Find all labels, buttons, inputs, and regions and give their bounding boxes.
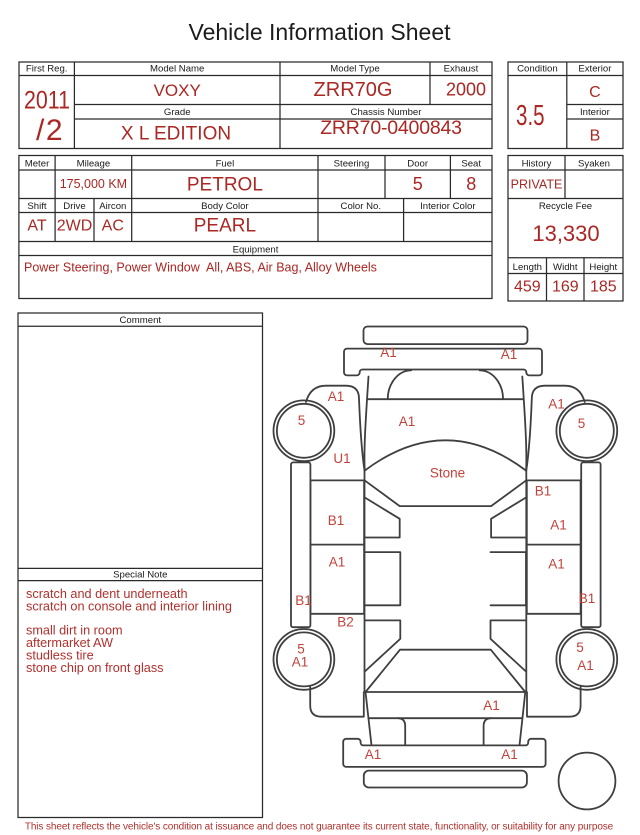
svg-text:B1: B1 (535, 484, 552, 499)
svg-text:A1: A1 (365, 747, 382, 762)
svg-text:B: B (590, 128, 601, 145)
svg-text:stone chip on front glass: stone chip on front glass (26, 661, 164, 675)
svg-text:A1: A1 (380, 345, 397, 360)
svg-text:Mileage: Mileage (77, 159, 111, 170)
svg-text:Vehicle Information Sheet: Vehicle Information Sheet (189, 19, 452, 45)
svg-text:A1: A1 (292, 655, 309, 670)
svg-text:AC: AC (102, 218, 124, 235)
svg-text:Seat: Seat (461, 159, 481, 170)
svg-text:PETROL: PETROL (187, 175, 263, 196)
svg-text:PEARL: PEARL (194, 216, 256, 237)
svg-text:2011: 2011 (24, 87, 70, 115)
svg-text:Fuel: Fuel (216, 159, 235, 170)
svg-text:History: History (522, 159, 552, 170)
svg-text:Shift: Shift (27, 201, 47, 212)
svg-text:Height: Height (589, 262, 617, 273)
svg-text:A1: A1 (483, 698, 500, 713)
svg-text:A1: A1 (399, 414, 416, 429)
svg-text:A1: A1 (577, 658, 594, 673)
svg-text:Comment: Comment (120, 315, 162, 326)
svg-text:Color No.: Color No. (341, 201, 382, 212)
svg-text:Stone: Stone (430, 466, 465, 481)
svg-text:Meter: Meter (25, 159, 50, 170)
svg-text:B2: B2 (337, 615, 354, 630)
svg-text:Grade: Grade (164, 107, 191, 118)
svg-text:This sheet reflects the vehicl: This sheet reflects the vehicle's condit… (25, 822, 614, 833)
svg-text:A1: A1 (548, 557, 565, 572)
svg-text:Syaken: Syaken (578, 159, 610, 170)
svg-text:AT: AT (27, 218, 46, 235)
svg-text:5: 5 (576, 640, 584, 655)
svg-text:PRIVATE: PRIVATE (511, 178, 563, 192)
svg-text:C: C (589, 84, 601, 101)
svg-text:A1: A1 (550, 518, 567, 533)
svg-text:5: 5 (298, 413, 306, 428)
svg-text:13,330: 13,330 (532, 221, 599, 246)
svg-text:ZRR70-0400843: ZRR70-0400843 (320, 117, 462, 139)
svg-text:2WD: 2WD (57, 218, 93, 235)
svg-text:5: 5 (578, 416, 586, 431)
svg-text:Exterior: Exterior (578, 64, 612, 75)
svg-text:Interior: Interior (580, 107, 611, 118)
svg-text:Power Steering, Power Window: Power Steering, Power Window All, ABS, A… (24, 261, 377, 275)
svg-text:scratch on console and interio: scratch on console and interior lining (26, 599, 232, 613)
svg-text:Condition: Condition (517, 64, 558, 75)
svg-text:175,000 KM: 175,000 KM (60, 177, 127, 191)
svg-text:Equipment: Equipment (233, 245, 279, 256)
svg-text:VOXY: VOXY (154, 81, 201, 100)
svg-text:Model Type: Model Type (330, 64, 379, 75)
svg-text:First Reg.: First Reg. (26, 64, 68, 75)
svg-text:Special Note: Special Note (113, 570, 167, 581)
svg-text:459: 459 (514, 279, 541, 296)
svg-text:8: 8 (466, 174, 476, 194)
svg-text:185: 185 (590, 279, 617, 296)
svg-text:A1: A1 (328, 389, 345, 404)
svg-text:3.5: 3.5 (516, 100, 545, 132)
svg-text:Widht: Widht (553, 262, 578, 273)
svg-text:B1: B1 (328, 513, 345, 528)
svg-text:A1: A1 (501, 747, 518, 762)
svg-text:Recycle Fee: Recycle Fee (539, 201, 592, 212)
svg-text:B1: B1 (295, 593, 312, 608)
svg-text:Exhaust: Exhaust (444, 64, 479, 75)
svg-text:X L EDITION: X L EDITION (121, 124, 231, 145)
svg-text:169: 169 (552, 279, 579, 296)
svg-text:Drive: Drive (63, 201, 85, 212)
svg-text:A1: A1 (548, 397, 565, 412)
svg-text:Body Color: Body Color (201, 201, 249, 212)
svg-text:A1: A1 (329, 555, 346, 570)
svg-text:A1: A1 (501, 347, 518, 362)
svg-text:Model Name: Model Name (150, 64, 204, 75)
svg-text:U1: U1 (333, 451, 350, 466)
svg-text:Steering: Steering (334, 159, 370, 170)
svg-text:ZRR70G: ZRR70G (314, 79, 393, 101)
svg-text:Length: Length (513, 262, 542, 273)
svg-text:Interior Color: Interior Color (420, 201, 476, 212)
svg-text:2000: 2000 (446, 80, 486, 100)
svg-text:5: 5 (413, 174, 423, 194)
svg-text:/2: /2 (36, 114, 64, 147)
svg-text:Aircon: Aircon (99, 201, 126, 212)
svg-text:B1: B1 (579, 591, 596, 606)
svg-text:Door: Door (407, 159, 429, 170)
